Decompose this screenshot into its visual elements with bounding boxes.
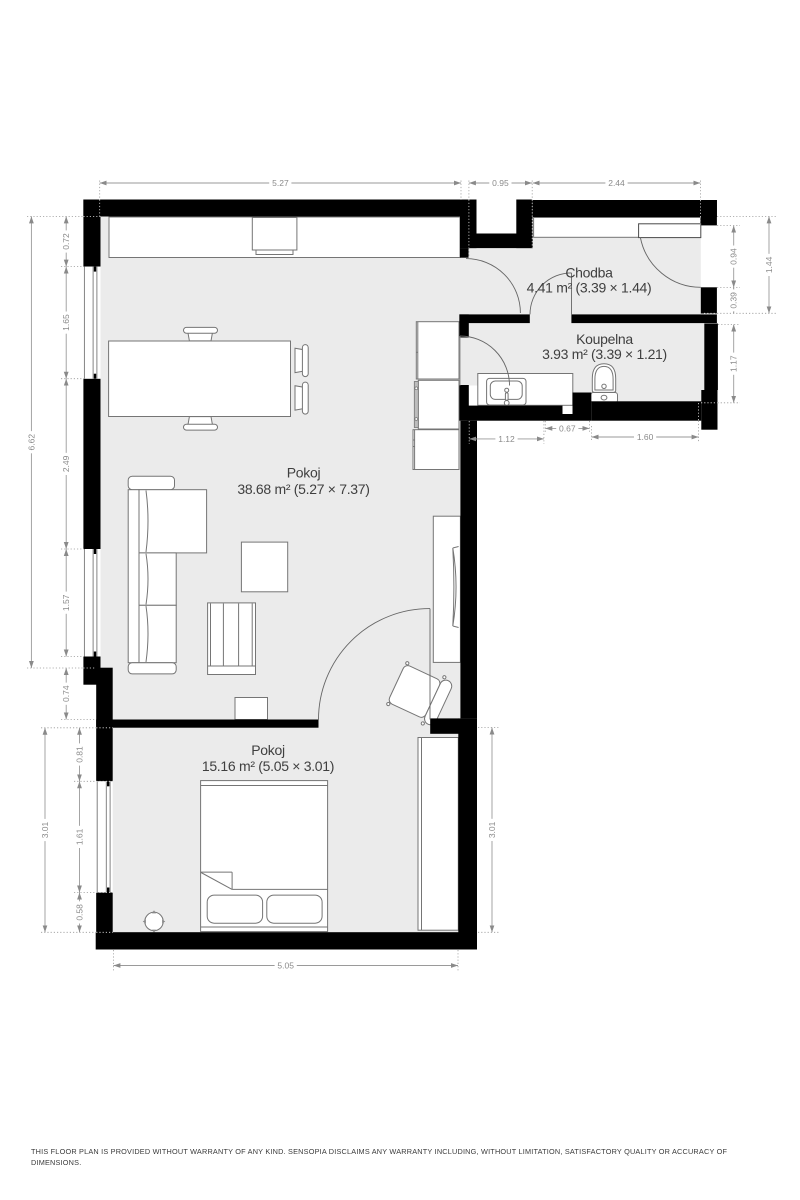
svg-text:0.39: 0.39 (729, 292, 739, 309)
svg-text:0.81: 0.81 (75, 746, 85, 763)
svg-text:0.95: 0.95 (492, 178, 509, 188)
svg-text:0.58: 0.58 (75, 904, 85, 921)
svg-text:2.44: 2.44 (608, 178, 625, 188)
svg-text:0.67: 0.67 (559, 423, 576, 433)
svg-text:1.57: 1.57 (61, 594, 71, 611)
svg-text:1.12: 1.12 (498, 434, 515, 444)
svg-text:3.01: 3.01 (487, 821, 497, 838)
svg-text:5.27: 5.27 (272, 178, 289, 188)
svg-text:DIMENSIONS.: DIMENSIONS. (31, 1158, 81, 1167)
svg-text:3.01: 3.01 (40, 821, 50, 838)
svg-text:1.61: 1.61 (75, 828, 85, 845)
svg-text:Pokoj: Pokoj (251, 742, 285, 758)
svg-text:0.74: 0.74 (61, 685, 71, 702)
svg-text:1.44: 1.44 (764, 256, 774, 273)
svg-text:0.72: 0.72 (61, 233, 71, 250)
svg-text:1.60: 1.60 (637, 432, 654, 442)
svg-text:38.68 m² (5.27 × 7.37): 38.68 m² (5.27 × 7.37) (237, 481, 369, 497)
svg-text:Pokoj: Pokoj (287, 464, 321, 480)
svg-text:Chodba: Chodba (565, 264, 613, 280)
svg-text:4.41 m² (3.39 × 1.44): 4.41 m² (3.39 × 1.44) (527, 280, 652, 296)
svg-text:2.49: 2.49 (61, 455, 71, 472)
svg-text:1.17: 1.17 (729, 355, 739, 372)
svg-text:1.65: 1.65 (61, 314, 71, 331)
svg-text:3.93 m² (3.39 × 1.21): 3.93 m² (3.39 × 1.21) (542, 346, 667, 362)
svg-text:Koupelna: Koupelna (576, 331, 633, 347)
svg-text:0.94: 0.94 (729, 248, 739, 265)
svg-text:5.05: 5.05 (277, 961, 294, 971)
svg-text:THIS FLOOR PLAN IS PROVIDED WI: THIS FLOOR PLAN IS PROVIDED WITHOUT WARR… (31, 1147, 727, 1156)
svg-text:15.16 m² (5.05 × 3.01): 15.16 m² (5.05 × 3.01) (202, 758, 334, 774)
svg-text:6.62: 6.62 (26, 434, 36, 451)
